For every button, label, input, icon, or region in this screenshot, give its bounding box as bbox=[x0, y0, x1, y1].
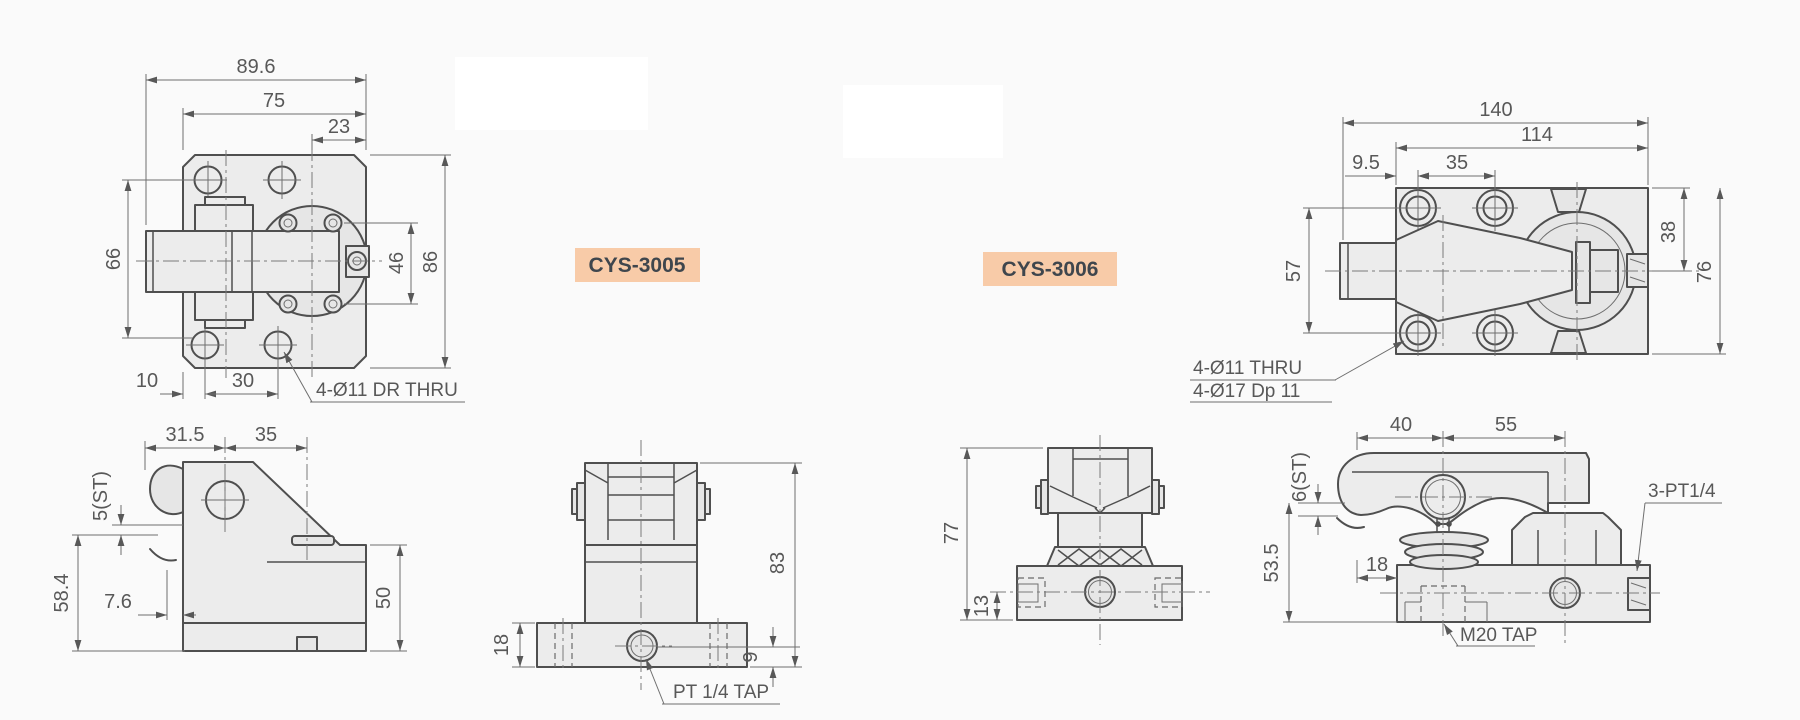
dim-plate-height: 76 bbox=[1694, 261, 1716, 283]
dim-arm-front: 55 bbox=[1495, 414, 1517, 436]
stud-break-arc bbox=[1337, 518, 1364, 528]
clamp-body bbox=[183, 462, 366, 623]
dim-edge-to-hole: 9.5 bbox=[1352, 152, 1380, 174]
dim-open-height: 58.4 bbox=[51, 574, 73, 613]
dim-port-height: 13 bbox=[971, 595, 993, 617]
callout-holes-line1: 4-Ø11 THRU bbox=[1193, 358, 1302, 379]
dim-port-height: 9 bbox=[740, 651, 762, 662]
spring-washers bbox=[1400, 532, 1488, 569]
product-label-cys-3006: CYS-3006 bbox=[983, 252, 1117, 286]
hook-arm bbox=[150, 466, 183, 514]
product-name: CYS-3006 bbox=[1002, 258, 1099, 281]
bottom-slot-tab bbox=[1551, 331, 1586, 353]
callout-holes-line2: 4-Ø17 Dp 11 bbox=[1193, 381, 1300, 402]
cylinder-nut bbox=[1512, 513, 1621, 565]
dim-left-span: 66 bbox=[103, 248, 125, 270]
dim-overall-height: 86 bbox=[420, 251, 442, 273]
dim-hole-span: 57 bbox=[1283, 260, 1305, 282]
side-port bbox=[1628, 578, 1650, 610]
dim-edge-to-hole: 10 bbox=[136, 370, 158, 392]
clamp-pad bbox=[292, 536, 334, 545]
cys-3005-side-view: 18 83 9 PT 1/4 TAP bbox=[491, 440, 802, 704]
dim-hole-pitch: 30 bbox=[232, 370, 254, 392]
callout-port: PT 1/4 TAP bbox=[673, 682, 769, 703]
side-port bbox=[297, 637, 317, 651]
dim-flange-height: 18 bbox=[491, 634, 513, 656]
white-patch-right bbox=[843, 85, 1003, 158]
callout-ports: 3-PT1/4 bbox=[1648, 481, 1716, 502]
catalog-drawing-page: 89.6 75 23 66 46 86 10 30 4-Ø11 DR THRU bbox=[0, 0, 1800, 720]
product-label-cys-3005: CYS-3005 bbox=[575, 248, 700, 282]
dim-stroke: 6(ST) bbox=[1289, 452, 1311, 502]
dim-arm-back: 40 bbox=[1390, 414, 1412, 436]
cys-3005-front-view: 31.5 35 5(ST) 58.4 7.6 50 bbox=[51, 424, 407, 651]
white-patch-left bbox=[455, 57, 648, 130]
stud-break-arc bbox=[150, 549, 176, 561]
dim-body-height: 50 bbox=[373, 587, 395, 609]
dim-total-height: 77 bbox=[941, 522, 963, 544]
dim-screw-span: 46 bbox=[386, 252, 408, 274]
dim-edge-offset: 18 bbox=[1366, 554, 1388, 576]
cys-3006-top-view: 140 114 9.5 35 57 38 76 4-Ø11 THRU 4-Ø17… bbox=[1190, 99, 1726, 402]
dim-stroke: 5(ST) bbox=[90, 471, 112, 521]
dim-body-width: 75 bbox=[263, 90, 285, 112]
dim-arm-back: 31.5 bbox=[166, 424, 205, 446]
dim-overall-width: 89.6 bbox=[237, 56, 276, 78]
dim-clamp-height: 53.5 bbox=[1261, 544, 1283, 583]
bottom-flange bbox=[183, 623, 366, 651]
cys-3006-front-view: 77 13 bbox=[941, 435, 1210, 645]
retaining-ring-dot bbox=[1435, 521, 1441, 527]
dim-arm-front: 35 bbox=[255, 424, 277, 446]
dim-port-offset: 38 bbox=[1658, 221, 1680, 243]
top-slot-tab bbox=[1551, 189, 1586, 212]
dim-plate-width: 114 bbox=[1521, 124, 1553, 146]
dim-lip: 7.6 bbox=[104, 591, 132, 613]
cys-3006-side-view: 40 55 6(ST) 53.5 18 3-PT1/4 M20 TAP bbox=[1261, 414, 1722, 646]
technical-drawing-canvas: 89.6 75 23 66 46 86 10 30 4-Ø11 DR THRU bbox=[0, 0, 1800, 720]
clamp-pad bbox=[1576, 242, 1590, 303]
callout-tap: M20 TAP bbox=[1460, 625, 1537, 646]
dim-hole-pitch: 35 bbox=[1446, 152, 1468, 174]
dim-total-height: 83 bbox=[767, 552, 789, 574]
dim-boss-offset: 23 bbox=[328, 116, 350, 138]
callout-holes: 4-Ø11 DR THRU bbox=[316, 380, 458, 401]
cys-3005-top-view: 89.6 75 23 66 46 86 10 30 4-Ø11 DR THRU bbox=[103, 56, 465, 402]
dim-overall-width: 140 bbox=[1479, 99, 1512, 121]
product-name: CYS-3005 bbox=[589, 254, 686, 277]
